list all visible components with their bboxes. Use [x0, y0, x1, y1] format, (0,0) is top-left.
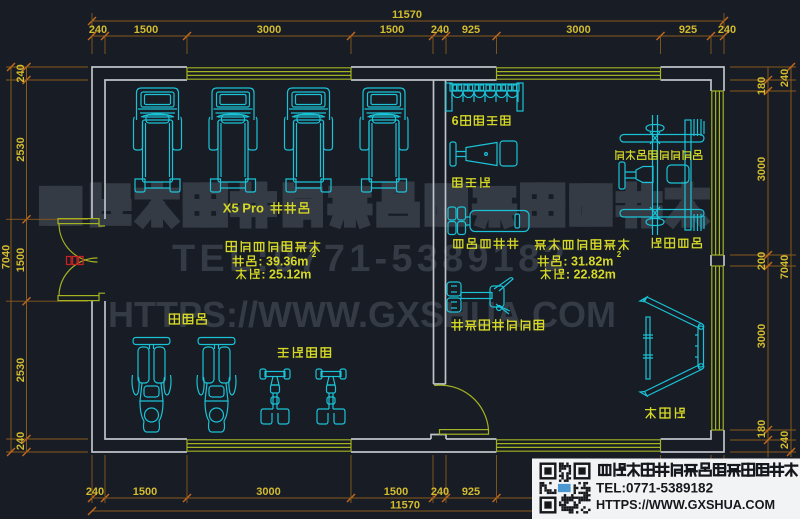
svg-text:3000: 3000: [256, 486, 280, 498]
svg-text:1500: 1500: [384, 486, 408, 498]
svg-text:11570: 11570: [392, 9, 422, 21]
svg-text:2: 2: [617, 250, 622, 259]
svg-text:: 25.12m: : 25.12m: [261, 268, 311, 282]
svg-text:3000: 3000: [566, 24, 590, 36]
svg-text:1500: 1500: [133, 486, 157, 498]
svg-text:1500: 1500: [134, 24, 158, 36]
svg-text:240: 240: [15, 432, 27, 450]
svg-text:240: 240: [89, 24, 107, 36]
svg-text:240: 240: [86, 486, 104, 498]
svg-text:240: 240: [15, 64, 27, 82]
svg-text:1500: 1500: [15, 248, 27, 272]
svg-text:: 39.36m: : 39.36m: [258, 255, 308, 269]
svg-text:240: 240: [431, 24, 449, 36]
svg-text:200: 200: [756, 252, 768, 270]
svg-text:7040: 7040: [779, 255, 791, 279]
svg-text:6: 6: [452, 114, 459, 128]
svg-text:3000: 3000: [756, 324, 768, 348]
svg-text:925: 925: [462, 24, 480, 36]
svg-text:: 31.82m: : 31.82m: [563, 255, 613, 269]
svg-text:HTTPS://WWW.GXSHUA.COM: HTTPS://WWW.GXSHUA.COM: [596, 498, 775, 512]
svg-text:X5 Pro: X5 Pro: [223, 201, 264, 216]
svg-text:3000: 3000: [257, 24, 281, 36]
svg-text:2: 2: [312, 250, 317, 259]
svg-text:240: 240: [718, 24, 736, 36]
svg-text:1500: 1500: [380, 24, 404, 36]
svg-text:925: 925: [462, 486, 480, 498]
svg-text:11570: 11570: [390, 500, 420, 512]
svg-text:7040: 7040: [0, 245, 12, 269]
svg-text:240: 240: [431, 486, 449, 498]
svg-text:2530: 2530: [15, 358, 27, 382]
svg-text:TEL:0771-5389182: TEL:0771-5389182: [596, 481, 713, 496]
svg-text:: 22.82m: : 22.82m: [566, 268, 616, 282]
svg-text:2530: 2530: [15, 137, 27, 161]
svg-text:925: 925: [679, 24, 697, 36]
svg-text:3000: 3000: [756, 157, 768, 181]
svg-text:180: 180: [756, 420, 768, 438]
svg-text:240: 240: [779, 69, 791, 87]
svg-text:180: 180: [756, 77, 768, 95]
svg-text:240: 240: [779, 431, 791, 449]
